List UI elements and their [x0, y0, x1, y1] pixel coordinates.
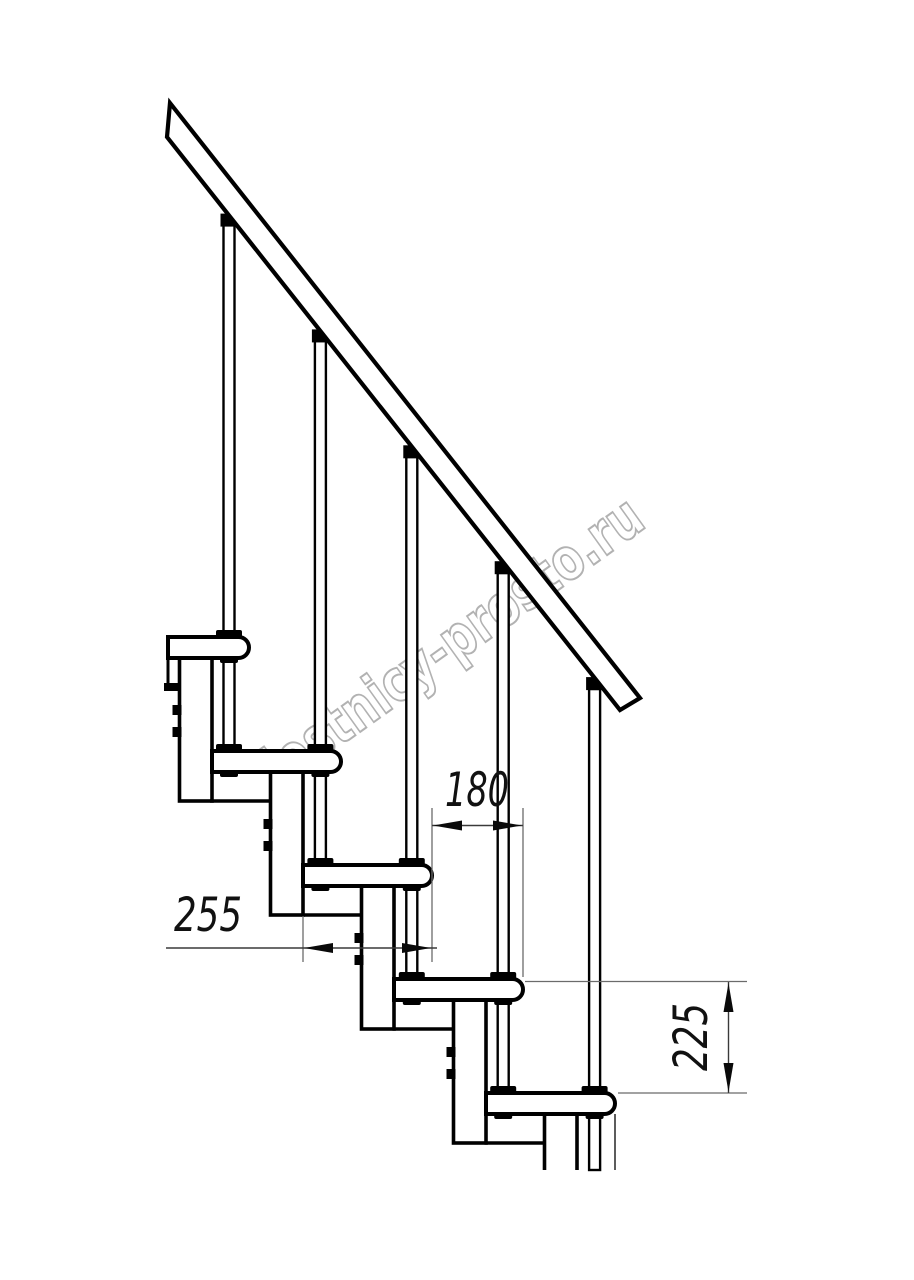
dim-label-run: 180	[445, 763, 509, 818]
dim-arrow-left	[433, 821, 462, 831]
bolt-detail	[173, 727, 182, 737]
handrail	[167, 103, 640, 710]
tread-nut	[403, 999, 421, 1005]
bolt-detail	[173, 705, 182, 715]
tread-clamp	[216, 744, 242, 752]
baluster	[315, 341, 326, 869]
tread-clamp	[216, 630, 242, 638]
baluster	[406, 457, 417, 983]
tread-nut	[586, 1113, 604, 1119]
bolt-detail	[447, 1047, 456, 1057]
tread-nut	[403, 885, 421, 891]
tread	[486, 1093, 615, 1114]
support-column	[362, 886, 395, 1029]
bolt-detail	[264, 819, 273, 829]
dim-label-depth: 255	[174, 888, 242, 943]
bolt-detail	[447, 1069, 456, 1079]
tread-clamp	[490, 972, 516, 980]
tread-nut	[494, 999, 512, 1005]
tread	[168, 637, 249, 658]
tread-clamp	[399, 972, 425, 980]
dim-label-rise: 225	[664, 1003, 719, 1071]
tread-clamp	[307, 858, 333, 866]
dim-arrow-left	[304, 943, 333, 953]
tread	[303, 865, 432, 886]
support-column	[454, 1000, 487, 1143]
tread-clamp	[399, 858, 425, 866]
dim-arrow-up	[724, 983, 734, 1012]
staircase-drawing: lestnicy-prosto.ru	[0, 0, 914, 1280]
tread-nut	[220, 771, 238, 777]
tread-clamp	[582, 1086, 608, 1094]
bolt-detail	[264, 841, 273, 851]
bolt-detail	[164, 683, 178, 691]
bolt-detail	[355, 955, 364, 965]
bolt-detail	[355, 933, 364, 943]
support-column	[180, 658, 213, 801]
tread-nut	[220, 657, 238, 663]
tread-nut	[311, 885, 329, 891]
tread-nut	[494, 1113, 512, 1119]
tread-nut	[311, 771, 329, 777]
drawing-page: lestnicy-prosto.ru	[0, 0, 914, 1280]
support-column	[271, 772, 304, 915]
tread-clamp	[307, 744, 333, 752]
baluster	[498, 573, 509, 1097]
tread	[212, 751, 341, 772]
tread-clamp	[490, 1086, 516, 1094]
dim-arrow-down	[724, 1063, 734, 1092]
baluster	[224, 225, 235, 755]
tread	[394, 979, 523, 1000]
